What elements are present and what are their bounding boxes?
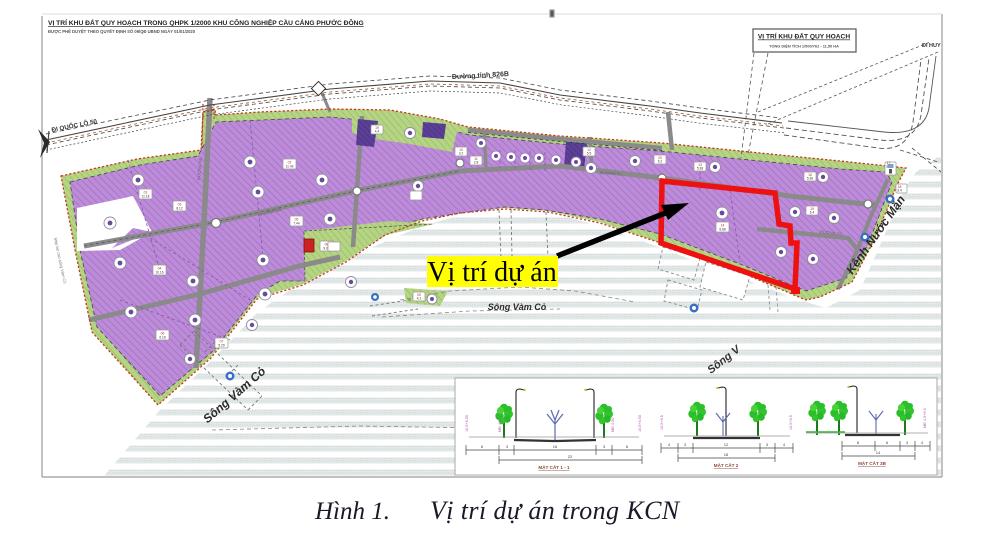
svg-text:12: 12	[724, 442, 729, 447]
svg-text:MẶT CẮT 3B: MẶT CẮT 3B	[858, 459, 886, 466]
svg-text:2.8: 2.8	[474, 161, 479, 165]
svg-text:16: 16	[553, 444, 558, 449]
svg-text:10.16: 10.16	[156, 271, 164, 275]
svg-text:14: 14	[876, 450, 881, 455]
svg-text:MĐ 4.5+6.5: MĐ 4.5+6.5	[923, 408, 927, 428]
svg-text:TỔNG DIỆN TÍCH 1/500/762 - 11,: TỔNG DIỆN TÍCH 1/500/762 - 11,50 HA	[769, 44, 839, 49]
svg-text:ĐƯỢC PHÊ DUYỆT THEO QUYẾT ĐỊNH: ĐƯỢC PHÊ DUYỆT THEO QUYẾT ĐỊNH SỐ 09/QĐ …	[48, 29, 196, 34]
svg-text:MẶT CẮT 1 - 1: MẶT CẮT 1 - 1	[538, 463, 570, 470]
svg-text:5.36: 5.36	[807, 177, 813, 181]
svg-text:4.4: 4.4	[375, 130, 380, 134]
svg-text:Hình 1.: Hình 1.	[314, 498, 390, 525]
svg-text:3.4: 3.4	[897, 189, 902, 193]
svg-text:10.5+6.50: 10.5+6.50	[465, 415, 469, 432]
svg-text:8.12: 8.12	[176, 207, 182, 211]
svg-text:10.5+6.50: 10.5+6.50	[638, 415, 642, 432]
svg-text:Vị trí dự án trong KCN: Vị trí dự án trong KCN	[430, 496, 681, 525]
svg-text:10.5+6.5: 10.5+6.5	[660, 415, 664, 430]
svg-text:10.5+6.5: 10.5+6.5	[789, 415, 793, 430]
svg-text:6.18: 6.18	[159, 336, 165, 340]
svg-text:5.38: 5.38	[697, 167, 703, 171]
svg-text:11.43: 11.43	[286, 165, 294, 169]
svg-text:ĐI HUY: ĐI HUY	[922, 43, 941, 49]
svg-text:6.2: 6.2	[658, 160, 663, 164]
svg-text:5.29: 5.29	[218, 344, 224, 348]
svg-text:7.44: 7.44	[293, 222, 299, 226]
svg-text:MĐ 4.50: MĐ 4.50	[611, 418, 615, 432]
svg-text:MĐ 4.50: MĐ 4.50	[498, 418, 502, 432]
svg-text:6.4: 6.4	[810, 211, 815, 215]
svg-text:18: 18	[724, 452, 729, 457]
svg-text:3.2: 3.2	[459, 152, 464, 156]
svg-text:Vị trí dự án: Vị trí dự án	[427, 257, 557, 288]
svg-text:22: 22	[568, 454, 573, 459]
svg-text:MẶT CẮT 2: MẶT CẮT 2	[714, 461, 739, 468]
svg-text:11.18: 11.18	[142, 195, 150, 199]
svg-text:4.1: 4.1	[417, 297, 422, 301]
svg-text:5.5: 5.5	[587, 152, 592, 156]
svg-text:8.88: 8.88	[719, 228, 725, 232]
svg-text:Sông Vàm Cỏ: Sông Vàm Cỏ	[488, 302, 547, 312]
